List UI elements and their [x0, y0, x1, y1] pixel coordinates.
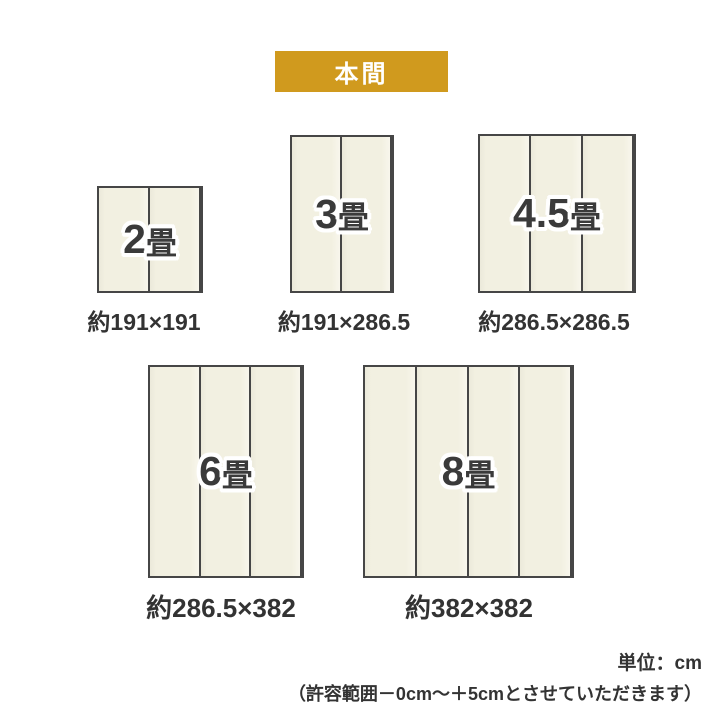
mat-2jo: 2 畳 — [97, 186, 203, 293]
mat-3jo-dimensions: 約191×286.5 — [278, 303, 410, 337]
tolerance-note: （許容範囲－0cm～＋5cmとさせていただきます） — [288, 680, 702, 706]
mat-3jo-label: 3 畳 — [292, 137, 392, 291]
mat-8jo-dimensions: 約382×382 — [405, 588, 533, 625]
badge-label: 本間 — [335, 54, 389, 89]
mat-6jo: 6 畳 — [148, 365, 304, 578]
mat-45jo-label: 4.5 畳 — [480, 136, 634, 291]
footer-notes: 単位：cm （許容範囲－0cm～＋5cmとさせていただきます） — [288, 648, 702, 706]
mat-6jo-dimensions: 約286.5×382 — [146, 588, 296, 625]
mat-size-unit: 畳 — [146, 221, 177, 259]
size-standard-badge: 本間 — [275, 51, 448, 92]
mat-size-number: 3 — [315, 194, 338, 235]
mat-size-number: 6 — [199, 451, 222, 492]
mat-size-number: 4.5 — [513, 193, 570, 234]
mat-8jo: 8 畳 — [363, 365, 574, 578]
mat-6jo-label: 6 畳 — [150, 367, 302, 576]
mat-size-unit: 畳 — [464, 453, 495, 491]
mat-8jo-label: 8 畳 — [365, 367, 572, 576]
unit-note: 単位：cm — [288, 648, 702, 675]
mat-3jo: 3 畳 — [290, 135, 394, 293]
mat-size-unit: 畳 — [570, 195, 601, 233]
mat-size-unit: 畳 — [338, 195, 369, 233]
mat-size-unit: 畳 — [222, 453, 253, 491]
mat-45jo: 4.5 畳 — [478, 134, 636, 293]
mat-size-number: 2 — [123, 219, 146, 260]
tatami-size-diagram: 本間 2 畳 約191×191 3 畳 約191×286.5 4.5 畳 約28… — [0, 0, 720, 720]
mat-size-number: 8 — [442, 451, 465, 492]
mat-2jo-label: 2 畳 — [99, 188, 201, 291]
mat-2jo-dimensions: 約191×191 — [87, 303, 200, 337]
mat-45jo-dimensions: 約286.5×286.5 — [478, 303, 630, 337]
